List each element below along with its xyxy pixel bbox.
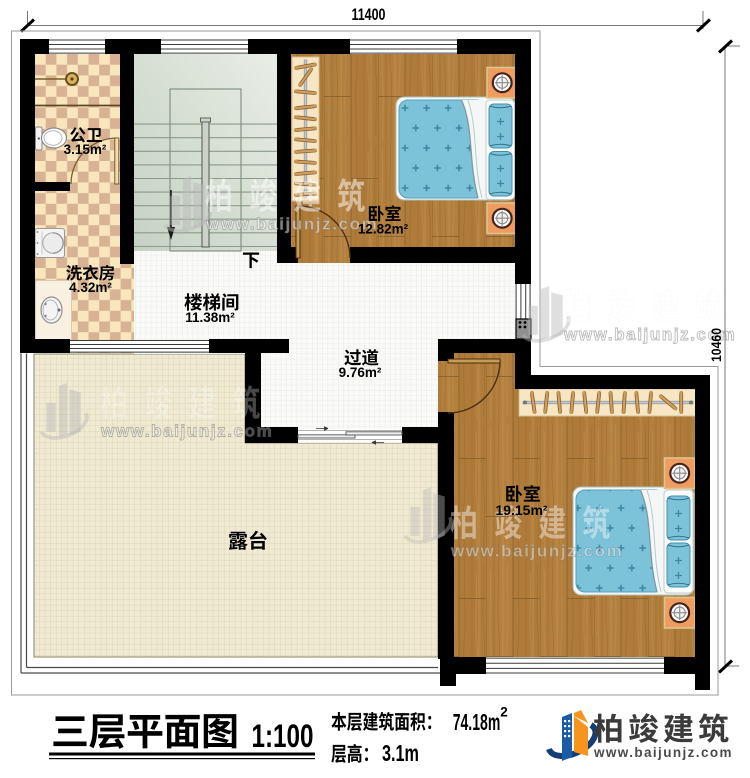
svg-text:www.baijunjz.com: www.baijunjz.com [450, 542, 623, 561]
svg-text:3.15m²: 3.15m² [64, 142, 107, 157]
svg-text:11400: 11400 [352, 6, 386, 24]
svg-text:19.15m²: 19.15m² [495, 502, 547, 518]
svg-text:12.82m²: 12.82m² [358, 222, 409, 237]
svg-text:1:100: 1:100 [252, 718, 314, 754]
svg-text:9.76m²: 9.76m² [339, 365, 382, 380]
svg-text:10460: 10460 [709, 328, 724, 362]
svg-text:4.32m²: 4.32m² [69, 280, 112, 295]
svg-text:3.1m: 3.1m [382, 740, 419, 766]
svg-text:www.baijunjz.com: www.baijunjz.com [593, 745, 733, 760]
svg-text:www.baijunjz.com: www.baijunjz.com [100, 422, 273, 441]
svg-text:11.38m²: 11.38m² [185, 310, 235, 325]
svg-text:74.18m: 74.18m [453, 709, 501, 735]
svg-text:www.baijunjz.com: www.baijunjz.com [205, 215, 378, 234]
svg-text:2: 2 [500, 705, 508, 720]
